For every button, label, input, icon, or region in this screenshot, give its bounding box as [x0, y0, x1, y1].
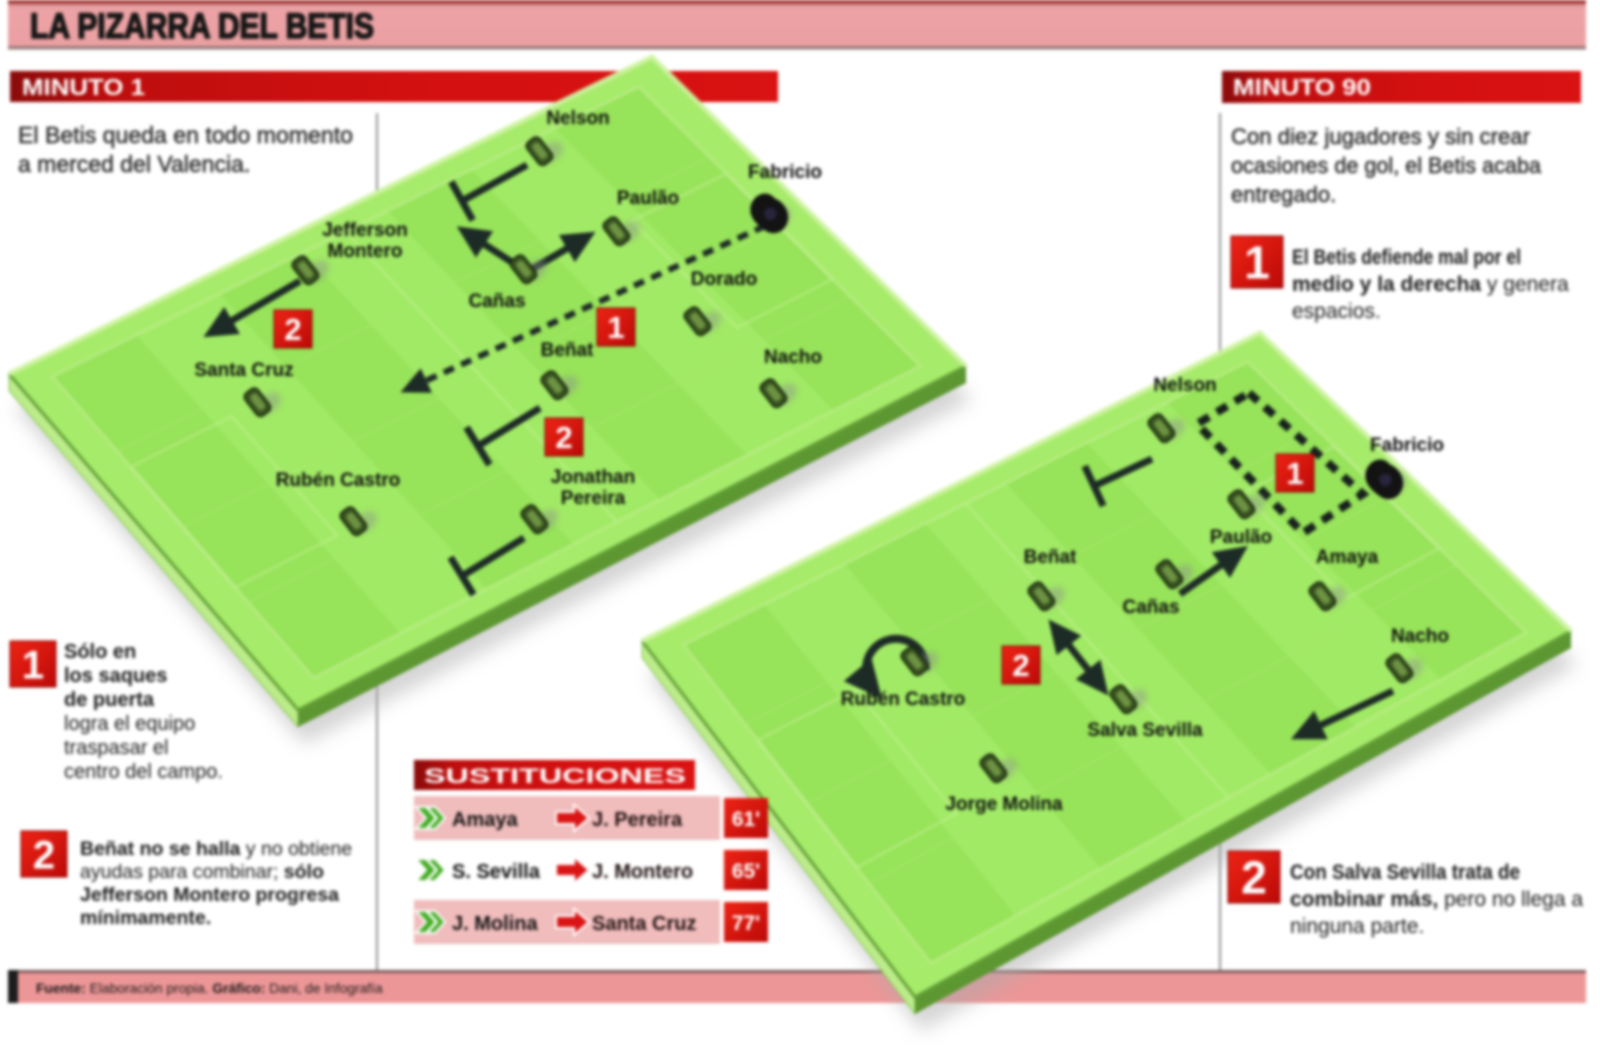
svg-text:MINUTO 90: MINUTO 90	[1233, 74, 1371, 100]
svg-text:MINUTO 1: MINUTO 1	[22, 74, 145, 100]
svg-text:Amaya: Amaya	[452, 809, 518, 831]
svg-text:Paulão: Paulão	[617, 188, 679, 209]
svg-text:Nelson: Nelson	[546, 108, 609, 129]
svg-text:Jefferson Montero progresa: Jefferson Montero progresa	[80, 884, 339, 906]
svg-text:ayudas para combinar; sólo: ayudas para combinar; sólo	[80, 861, 324, 883]
svg-text:77': 77'	[732, 912, 760, 935]
svg-text:Nacho: Nacho	[1391, 626, 1449, 647]
svg-text:los saques: los saques	[64, 665, 167, 687]
svg-text:Con diez jugadores y sin crear: Con diez jugadores y sin crear	[1231, 124, 1530, 149]
svg-text:Beñat: Beñat	[1024, 547, 1077, 568]
svg-text:centro del campo.: centro del campo.	[64, 761, 223, 783]
svg-text:Con Salva Sevilla trata de: Con Salva Sevilla trata de	[1290, 861, 1520, 884]
svg-text:mínimamente.: mínimamente.	[80, 907, 211, 929]
svg-text:Salva Sevilla: Salva Sevilla	[1087, 720, 1203, 741]
svg-text:65': 65'	[732, 860, 760, 883]
svg-text:J. Montero: J. Montero	[592, 861, 693, 883]
svg-text:2: 2	[555, 420, 572, 455]
svg-text:LA PIZARRA DEL BETIS: LA PIZARRA DEL BETIS	[30, 7, 374, 46]
svg-text:1: 1	[607, 310, 624, 345]
svg-text:Fabricio: Fabricio	[1370, 435, 1444, 456]
svg-text:61': 61'	[732, 808, 760, 831]
svg-text:Pereira: Pereira	[561, 488, 626, 509]
svg-text:Jefferson: Jefferson	[322, 220, 408, 241]
svg-text:Amaya: Amaya	[1316, 547, 1379, 568]
svg-text:entregado.: entregado.	[1231, 182, 1336, 207]
svg-text:Santa Cruz: Santa Cruz	[194, 360, 293, 381]
svg-text:medio y la derecha y genera: medio y la derecha y genera	[1292, 273, 1569, 296]
svg-text:1: 1	[1244, 237, 1270, 289]
svg-text:Nacho: Nacho	[764, 347, 822, 368]
svg-text:Montero: Montero	[328, 241, 403, 262]
svg-text:Fuente: Elaboración propia. Gr: Fuente: Elaboración propia. Gráfico: Dan…	[36, 981, 383, 996]
svg-text:Cañas: Cañas	[1122, 597, 1179, 618]
svg-text:El Betis queda en todo momento: El Betis queda en todo momento	[18, 122, 353, 148]
svg-text:Dorado: Dorado	[691, 269, 758, 290]
svg-text:Jorge Molina: Jorge Molina	[945, 794, 1063, 815]
svg-text:1: 1	[1286, 456, 1303, 491]
svg-text:S. Sevilla: S. Sevilla	[452, 861, 541, 883]
svg-text:El Betis defiende mal por el: El Betis defiende mal por el	[1292, 246, 1521, 269]
svg-text:de puerta: de puerta	[64, 689, 155, 711]
svg-text:Jonathan: Jonathan	[551, 467, 635, 488]
svg-text:2: 2	[1012, 648, 1029, 683]
svg-text:Beñat: Beñat	[541, 340, 594, 361]
svg-text:traspasar el: traspasar el	[64, 737, 169, 759]
svg-text:SUSTITUCIONES: SUSTITUCIONES	[424, 765, 686, 788]
svg-text:2: 2	[33, 833, 55, 877]
svg-text:logra el equipo: logra el equipo	[64, 713, 195, 735]
svg-text:2: 2	[1241, 852, 1267, 904]
svg-text:Beñat no se halla y no obtiene: Beñat no se halla y no obtiene	[80, 838, 352, 860]
svg-text:ocasiones de gol, el Betis aca: ocasiones de gol, el Betis acaba	[1231, 153, 1542, 178]
svg-text:Nelson: Nelson	[1153, 375, 1216, 396]
svg-text:Fabricio: Fabricio	[748, 162, 822, 183]
svg-text:Sólo en: Sólo en	[64, 641, 136, 663]
svg-text:1: 1	[22, 643, 44, 687]
svg-text:J. Pereira: J. Pereira	[592, 809, 683, 831]
svg-text:Cañas: Cañas	[468, 291, 525, 312]
svg-text:J. Molina: J. Molina	[452, 913, 538, 935]
svg-text:Rubén Castro: Rubén Castro	[841, 689, 966, 710]
svg-text:ninguna parte.: ninguna parte.	[1290, 915, 1424, 938]
svg-text:Paulão: Paulão	[1210, 527, 1272, 548]
svg-text:a merced del Valencia.: a merced del Valencia.	[18, 151, 250, 177]
svg-text:combinar más, pero no llega a: combinar más, pero no llega a	[1290, 888, 1583, 911]
svg-text:espacios.: espacios.	[1292, 300, 1381, 323]
svg-text:Santa Cruz: Santa Cruz	[592, 913, 696, 935]
svg-text:Rubén Castro: Rubén Castro	[276, 470, 401, 491]
svg-text:2: 2	[284, 312, 301, 347]
